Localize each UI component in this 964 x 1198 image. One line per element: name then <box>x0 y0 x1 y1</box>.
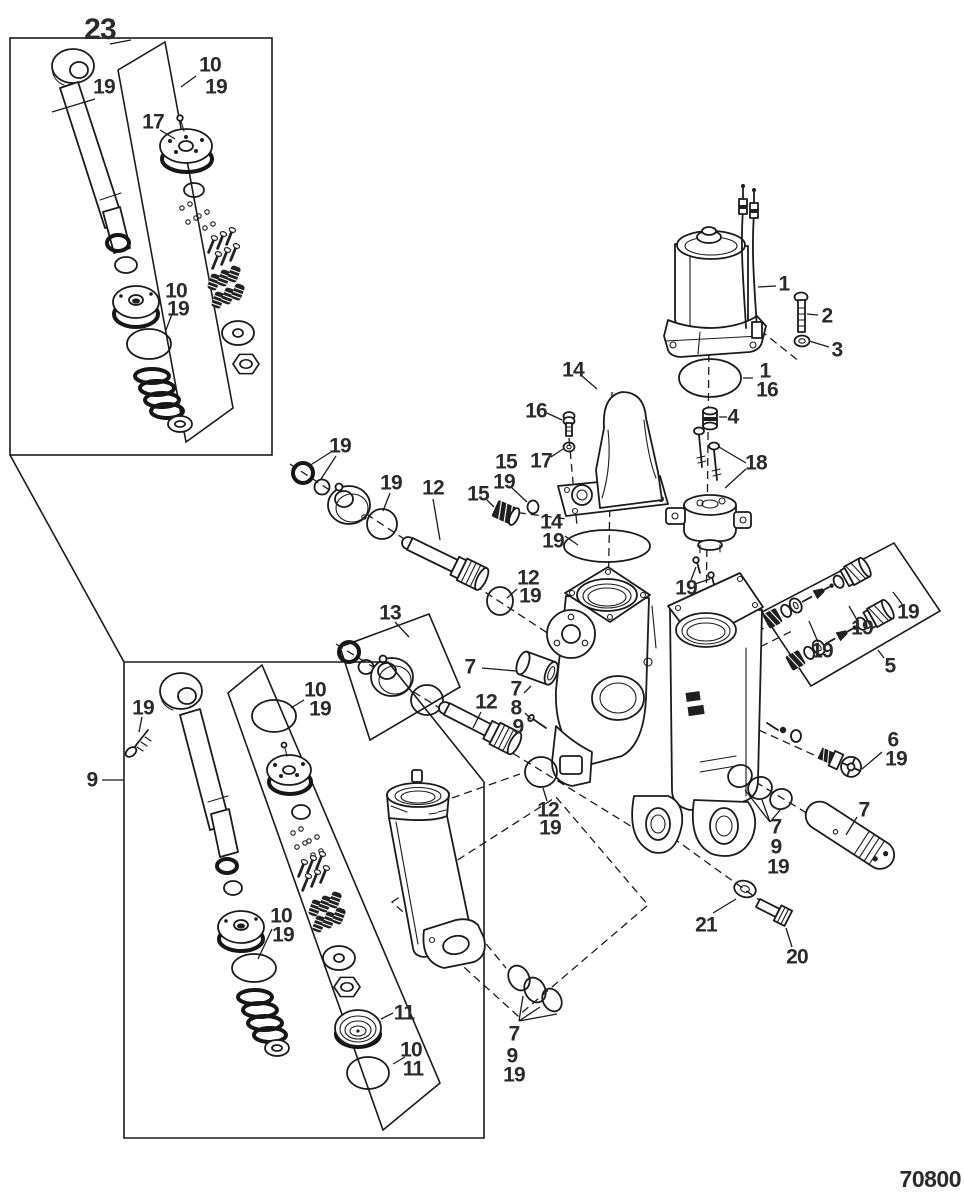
spring-seat-upper <box>168 416 192 432</box>
piston-nut <box>233 354 259 373</box>
tilt-rod-washer <box>224 881 242 895</box>
valve-kit-5 <box>761 543 940 686</box>
check-ball-set <box>180 202 215 230</box>
relief-spring-lower <box>238 990 286 1042</box>
tilt-cap-o-ring-top <box>252 700 296 732</box>
tilt-piston-washer <box>323 946 355 970</box>
tilt-piston-nut <box>334 977 360 996</box>
tilt-cylinder-body <box>387 770 485 968</box>
piston-cap-lower <box>218 911 264 951</box>
reservoir-cover-14 <box>558 392 668 516</box>
relief-spring-upper <box>135 369 183 418</box>
manifold-body <box>547 567 763 856</box>
trim-rod-12-upper <box>397 530 491 592</box>
motor-assembly <box>664 184 810 397</box>
reservoir-group <box>491 392 668 562</box>
tilt-check-balls <box>291 827 323 857</box>
manual-release-valve-group <box>767 723 864 780</box>
rod-o-ring-lower <box>525 757 557 787</box>
filter-o-ring-19 <box>528 501 539 514</box>
manifold-eye-boss-right <box>693 800 755 856</box>
diagram-stage: 2319101917101912311614161715191514194181… <box>0 0 964 1198</box>
motor-washer-3 <box>795 336 810 347</box>
trim-rod-and-eye <box>52 49 130 253</box>
tilt-piston-17 <box>267 743 311 795</box>
diagram-art <box>0 0 964 1198</box>
inner-kit-bracket <box>118 42 233 442</box>
bottom-o-rings <box>504 962 566 1015</box>
rod-washer <box>115 257 137 273</box>
piston-washer <box>222 321 254 345</box>
pump-body-18 <box>666 495 751 553</box>
manifold-eye-boss-mid <box>632 796 682 853</box>
tilt-valve-pins <box>296 851 331 892</box>
detail-box-9 <box>124 662 485 1138</box>
diagram-number: 70800 <box>900 1166 961 1193</box>
cap-o-ring-lower <box>232 954 276 982</box>
tilt-valve-springs <box>308 891 347 933</box>
cover-gasket-19 <box>564 530 650 562</box>
piston-17 <box>160 115 212 172</box>
electric-motor <box>664 227 766 357</box>
valve-pin-set <box>206 227 241 270</box>
motor-bolt-2 <box>795 293 808 333</box>
tilt-rod-and-eye <box>160 673 238 857</box>
tilt-piston-seal-ring <box>292 805 310 819</box>
washer-21 <box>732 878 758 900</box>
coupler-4 <box>703 408 717 430</box>
end-cap-upper <box>328 484 370 525</box>
trim-rod-12-lower <box>434 695 524 757</box>
manifold-side-flange <box>547 610 595 658</box>
box-connector-line <box>10 455 124 662</box>
tilt-rod-seal <box>217 859 237 873</box>
detail-box-23 <box>10 38 272 455</box>
memory-piston-o-ring <box>347 1057 389 1089</box>
valve-spring-set <box>207 265 246 309</box>
rod-o-ring-upper <box>487 587 513 615</box>
filter-15 <box>491 500 521 527</box>
piston-cap-upper <box>113 286 159 327</box>
spring-seat-lower <box>265 1040 289 1056</box>
bushing-and-pin <box>514 650 561 728</box>
cap-o-ring <box>127 329 171 359</box>
bushing-7 <box>514 650 561 687</box>
memory-piston-11 <box>335 1010 381 1047</box>
pin-8 <box>527 714 546 728</box>
cover-screw-16 <box>564 412 575 436</box>
trim-rod-upper-group <box>293 463 513 615</box>
bolt-20 <box>754 895 792 926</box>
motor-o-ring-16 <box>679 359 741 397</box>
cross-pin-7 <box>800 796 899 874</box>
bleed-screw-19 <box>124 730 151 759</box>
release-valve-6 <box>816 744 864 780</box>
